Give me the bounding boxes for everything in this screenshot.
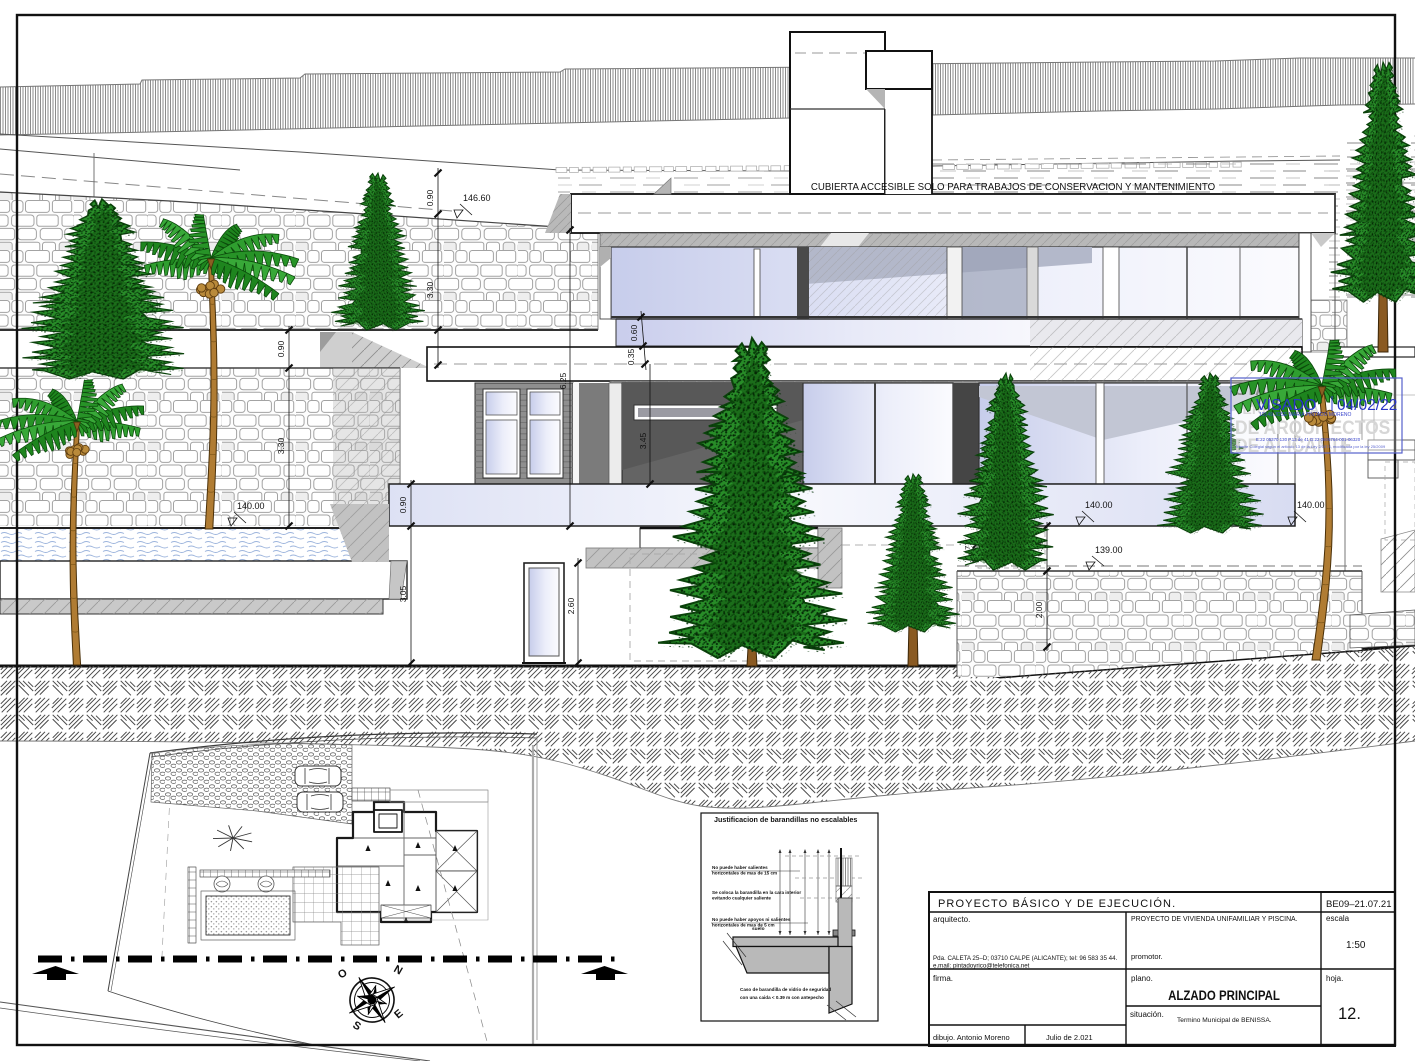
- svg-text:0.90: 0.90: [425, 189, 435, 206]
- svg-text:BE09–21.07.21: BE09–21.07.21: [1326, 899, 1392, 910]
- svg-text:arquitecto.: arquitecto.: [933, 915, 970, 924]
- svg-text:plano.: plano.: [1131, 974, 1153, 983]
- svg-text:146.60: 146.60: [463, 193, 491, 203]
- svg-text:3.30: 3.30: [425, 281, 435, 298]
- svg-text:0.90: 0.90: [276, 340, 286, 357]
- svg-text:Pda. CALETA 25–D; 03710 CALPE: Pda. CALETA 25–D; 03710 CALPE (ALICANTE)…: [933, 955, 1118, 962]
- svg-text:ALZADO PRINCIPAL: ALZADO PRINCIPAL: [1168, 988, 1280, 1003]
- svg-text:12.: 12.: [1338, 1005, 1361, 1023]
- svg-text:No puede haber apoyos ni salie: No puede haber apoyos ni salientes: [712, 917, 791, 922]
- svg-text:PROYECTO DE VIVIENDA UNIFAM: PROYECTO DE VIVIENDA UNIFAMILIAR Y PISCI…: [1131, 916, 1298, 923]
- svg-text:E:22 05370 130 P.12 de 41: E:22 05370 130 P.12 de 41 D:22 0606764-0…: [1256, 437, 1361, 442]
- svg-text:Caso de barandilla de vidrio d: Caso de barandilla de vidrio de segurida…: [740, 987, 831, 992]
- svg-text:dibujo. Antonio Moreno: dibujo. Antonio Moreno: [933, 1033, 1010, 1042]
- svg-text:6.25: 6.25: [558, 372, 568, 389]
- svg-text:140.00: 140.00: [1085, 500, 1113, 510]
- svg-text:CUBIERTA ACCESIBLE SOLO PARA T: CUBIERTA ACCESIBLE SOLO PARA TRABAJOS DE…: [811, 182, 1216, 193]
- svg-text:Termino Municipal de BENISSA.: Termino Municipal de BENISSA.: [1177, 1017, 1272, 1024]
- svg-text:139.00: 139.00: [1095, 545, 1123, 555]
- svg-text:e.mail: pintadoyrico@telefonic: e.mail: pintadoyrico@telefonica.net: [933, 963, 1030, 970]
- svg-text:Justificacion de barandillas n: Justificacion de barandillas no escalabl…: [714, 815, 857, 824]
- svg-text:0.90: 0.90: [398, 496, 408, 513]
- svg-text:escala: escala: [1326, 914, 1350, 923]
- svg-text:evitando cualquier saliente: evitando cualquier saliente: [712, 896, 771, 901]
- svg-text:firma.: firma.: [933, 974, 953, 983]
- svg-text:0.60: 0.60: [629, 324, 639, 341]
- svg-text:Julio de 2.021: Julio de 2.021: [1046, 1033, 1093, 1042]
- svg-text:140.00: 140.00: [1297, 500, 1325, 510]
- svg-text:hoja.: hoja.: [1326, 974, 1343, 983]
- svg-text:0.35: 0.35: [626, 348, 636, 365]
- svg-text:PROYECTO BÁSICO Y DE EJECUCIÓN: PROYECTO BÁSICO Y DE EJECUCIÓN.: [938, 897, 1176, 910]
- svg-text:10149 JOSE MARIA PINTADO MOREN: 10149 JOSE MARIA PINTADO MORENO: [1259, 412, 1352, 418]
- svg-text:3.05: 3.05: [398, 585, 408, 602]
- svg-text:3.30: 3.30: [276, 437, 286, 454]
- svg-text:con una caida < 0.39 m con ant: con una caida < 0.39 m con antepecho: [740, 995, 824, 1000]
- svg-text:Trámite Colegial según el artí: Trámite Colegial según el artículo 13 de…: [1235, 444, 1386, 449]
- svg-text:2.60: 2.60: [566, 597, 576, 614]
- svg-text:140.00: 140.00: [237, 501, 265, 511]
- svg-text:1:50: 1:50: [1346, 940, 1366, 951]
- svg-text:Se coloca la barandilla en la: Se coloca la barandilla en la cara inter…: [712, 890, 801, 895]
- svg-text:situación.: situación.: [1130, 1010, 1164, 1019]
- svg-text:suelo: suelo: [752, 926, 765, 932]
- svg-text:2.00: 2.00: [1034, 601, 1044, 618]
- svg-text:promotor.: promotor.: [1131, 952, 1163, 961]
- svg-text:3.45: 3.45: [638, 432, 648, 449]
- svg-text:No puede haber salientes: No puede haber salientes: [712, 865, 768, 870]
